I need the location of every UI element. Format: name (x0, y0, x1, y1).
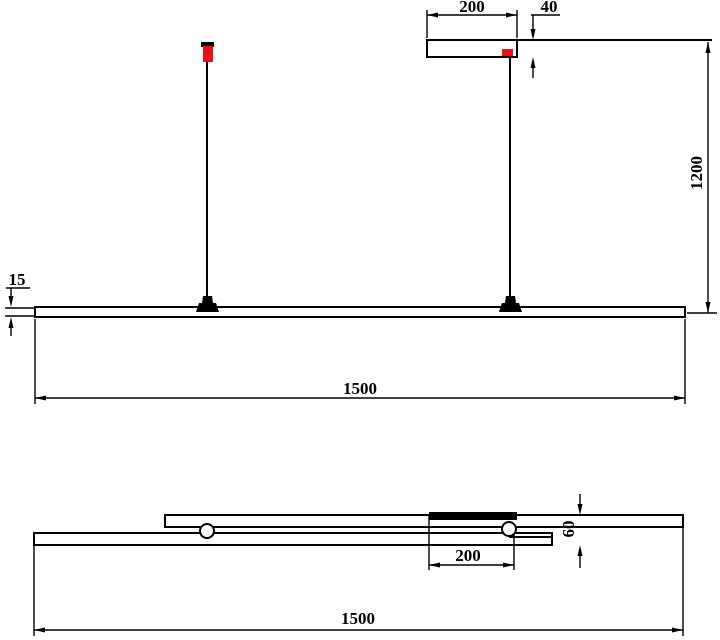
dim-text: 1500 (343, 379, 377, 398)
dim-front-overall-length: 1500 (35, 319, 685, 404)
arrowhead-left (34, 628, 45, 633)
arrowhead-right (672, 628, 683, 633)
dim-text: 60 (559, 521, 578, 538)
dim-text: 200 (459, 0, 485, 16)
wire-top-fixing-red (203, 46, 213, 62)
dim-text: 1200 (687, 156, 706, 190)
lamp-bar-upper-plan (165, 515, 683, 527)
technical-drawing-canvas: 200 40 1200 15 (0, 0, 720, 640)
front-view: 200 40 1200 15 (5, 0, 717, 404)
dim-text: 200 (455, 546, 481, 565)
dim-front-bar-thickness: 15 (5, 270, 35, 336)
arrowhead-up (578, 545, 583, 556)
arrowhead-up (9, 317, 14, 328)
arrowhead-right (674, 396, 685, 401)
dim-front-suspension-height: 1200 (687, 42, 717, 313)
dim-text: 1500 (341, 609, 375, 628)
canopy-plan-thick (429, 512, 517, 520)
dim-text: 40 (541, 0, 558, 16)
plan-view: 200 60 1500 (34, 494, 683, 636)
drawing-svg: 200 40 1200 15 (0, 0, 720, 640)
arrowhead-left (427, 13, 438, 18)
arrowhead-down (9, 296, 14, 307)
wire-gripper-left (196, 296, 219, 312)
dim-front-canopy-width: 200 (427, 0, 517, 38)
dim-text: 15 (9, 270, 26, 289)
dim-plan-stack-depth: 60 (559, 494, 583, 568)
arrowhead-down (578, 504, 583, 515)
arrowhead-right (506, 13, 517, 18)
canopy-wire-fixing-red (502, 49, 513, 56)
arrowhead-down (706, 302, 711, 313)
wire-attachment-circle-left (200, 524, 214, 538)
arrowhead-left (35, 396, 46, 401)
wire-gripper-right (499, 296, 522, 312)
arrowhead-up (531, 57, 536, 68)
arrowhead-down (531, 29, 536, 40)
arrowhead-left (429, 563, 440, 568)
arrowhead-up (706, 42, 711, 53)
lamp-bar-lower-plan (34, 533, 552, 545)
lamp-bar-front (35, 307, 685, 317)
arrowhead-right (503, 563, 514, 568)
